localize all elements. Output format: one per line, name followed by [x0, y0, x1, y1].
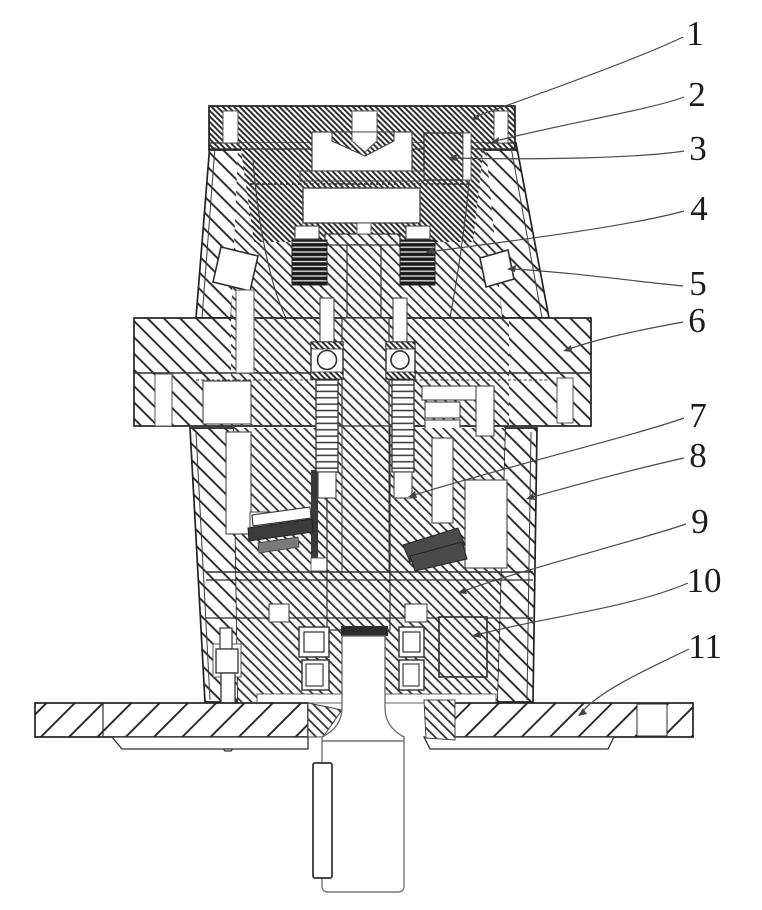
svg-text:4: 4 — [690, 189, 708, 228]
svg-text:6: 6 — [688, 301, 706, 340]
svg-text:8: 8 — [689, 436, 707, 475]
svg-text:1: 1 — [686, 14, 704, 53]
svg-text:5: 5 — [689, 264, 707, 303]
svg-text:11: 11 — [688, 627, 722, 666]
svg-text:3: 3 — [689, 129, 707, 168]
svg-text:2: 2 — [688, 75, 706, 114]
svg-text:9: 9 — [691, 502, 709, 541]
svg-text:7: 7 — [689, 396, 707, 435]
svg-text:10: 10 — [687, 561, 722, 600]
